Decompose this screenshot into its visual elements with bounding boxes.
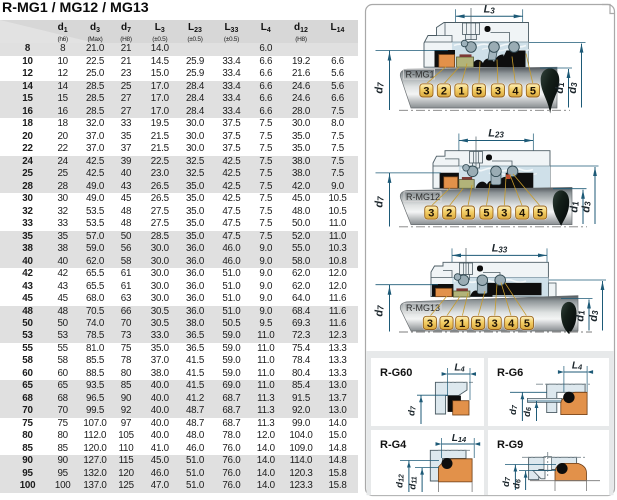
svg-text:L14: L14: [452, 433, 467, 444]
svg-text:R-G4: R-G4: [380, 439, 407, 451]
svg-text:d7: d7: [508, 404, 519, 415]
svg-text:d7: d7: [374, 82, 386, 94]
svg-text:5: 5: [537, 208, 543, 220]
svg-text:5: 5: [483, 208, 489, 220]
svg-text:d1: d1: [554, 82, 566, 94]
svg-text:R-MG1: R-MG1: [406, 69, 435, 79]
svg-text:5: 5: [530, 85, 536, 97]
svg-text:4: 4: [512, 85, 519, 97]
svg-text:L33: L33: [492, 243, 508, 255]
svg-text:L4: L4: [454, 363, 465, 374]
svg-text:4: 4: [508, 318, 515, 330]
svg-text:d7: d7: [407, 405, 418, 416]
svg-text:1: 1: [459, 318, 465, 330]
svg-text:d6: d6: [511, 479, 522, 489]
svg-text:2: 2: [446, 208, 452, 220]
svg-text:3: 3: [427, 318, 433, 330]
svg-text:4: 4: [519, 208, 526, 220]
svg-text:3: 3: [501, 208, 507, 220]
svg-text:d6: d6: [522, 407, 533, 417]
svg-text:d7: d7: [374, 305, 386, 317]
svg-text:d7: d7: [374, 196, 386, 208]
svg-text:5: 5: [476, 85, 482, 97]
svg-text:2: 2: [441, 85, 447, 97]
svg-text:L23: L23: [488, 128, 504, 140]
svg-text:R-MG12: R-MG12: [406, 192, 440, 202]
svg-text:L3: L3: [484, 4, 496, 16]
svg-text:d3: d3: [581, 201, 593, 213]
svg-text:2: 2: [443, 318, 449, 330]
svg-text:1: 1: [458, 85, 464, 97]
svg-text:R-G9: R-G9: [497, 439, 523, 451]
svg-text:5: 5: [475, 318, 481, 330]
svg-text:R-MG13: R-MG13: [406, 303, 440, 313]
svg-text:d11: d11: [408, 476, 419, 489]
svg-text:3: 3: [495, 85, 501, 97]
svg-text:1: 1: [465, 208, 471, 220]
svg-text:d3: d3: [588, 310, 600, 322]
svg-text:3: 3: [428, 208, 434, 220]
svg-text:d12: d12: [394, 474, 405, 488]
svg-text:d1: d1: [575, 310, 587, 322]
svg-text:d7: d7: [501, 476, 512, 487]
svg-text:R-G60: R-G60: [380, 367, 412, 379]
svg-text:3: 3: [423, 85, 429, 97]
svg-text:L4: L4: [572, 361, 583, 372]
svg-text:d3: d3: [567, 82, 579, 94]
svg-text:5: 5: [524, 318, 530, 330]
svg-text:R-G6: R-G6: [497, 367, 523, 379]
svg-text:3: 3: [492, 318, 498, 330]
svg-text:d1: d1: [569, 201, 581, 213]
